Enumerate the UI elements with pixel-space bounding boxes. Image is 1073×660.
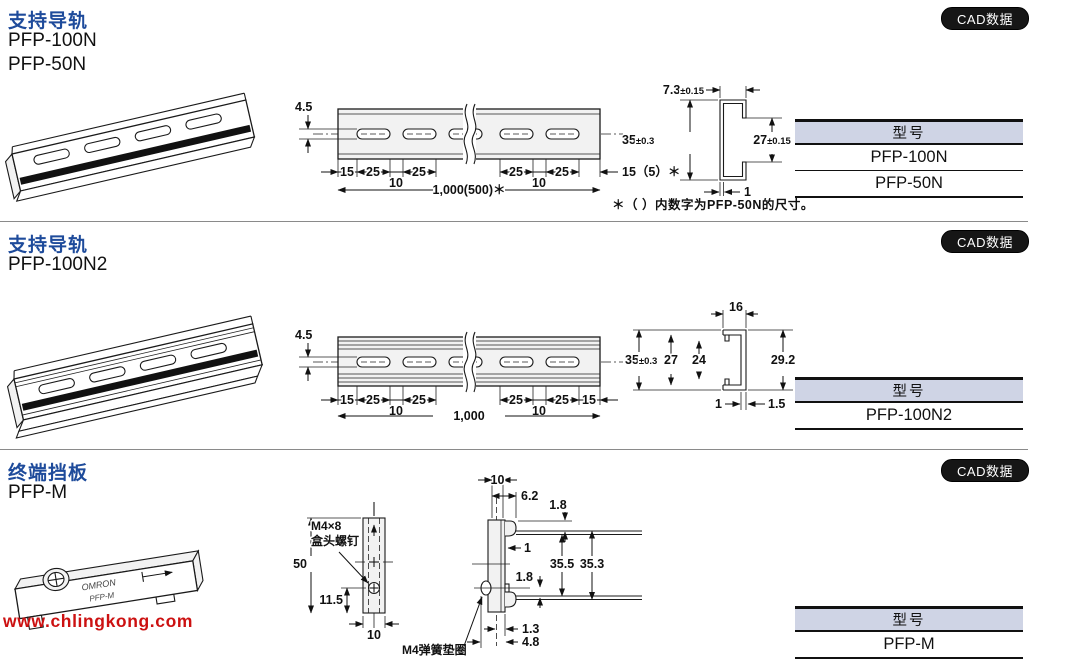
dim-label: 25 xyxy=(509,165,523,179)
section2-title: 支持导轨 xyxy=(8,230,88,257)
dim-label: 29.2 xyxy=(771,353,795,367)
dim-label: 25 xyxy=(366,393,380,407)
dim-label: 4.8 xyxy=(522,635,539,649)
dim-label: 1,000(500)＊ xyxy=(433,183,506,197)
dim-label: 11.5 xyxy=(319,593,343,607)
dim-label: 15 xyxy=(582,393,596,407)
rail-top-view-2: 4.5 15 25 10 25 25 10 25 15 1,000 xyxy=(283,318,683,428)
dim-label: 7.3±0.15 xyxy=(663,83,705,97)
section-divider xyxy=(0,449,1028,450)
model-table-2: 型号 PFP-100N2 xyxy=(795,377,1023,430)
model-table-3: 型号 PFP-M xyxy=(795,606,1023,659)
section3-title: 终端挡板 xyxy=(8,458,88,485)
dim-label: 25 xyxy=(412,165,426,179)
dim-label: 15 xyxy=(340,165,354,179)
dim-label: 1.8 xyxy=(549,498,566,512)
dim-label: 10 xyxy=(389,176,403,190)
dim-label: 25 xyxy=(555,393,569,407)
section2-model-1: PFP-100N2 xyxy=(8,254,107,276)
cad-data-button-3[interactable]: CAD数据 xyxy=(941,459,1029,482)
table-row: PFP-100N2 xyxy=(795,403,1023,428)
cad-data-button-2[interactable]: CAD数据 xyxy=(941,230,1029,253)
section1-title: 支持导轨 xyxy=(8,6,88,33)
dim-label: 1.3 xyxy=(522,622,539,636)
model-table-1: 型号 PFP-100N PFP-50N xyxy=(795,119,1023,198)
table-row: PFP-50N xyxy=(795,171,1023,196)
dim-label: 35±0.3 xyxy=(622,133,654,147)
section3-model-1: PFP-M xyxy=(8,482,67,504)
section1-note: ＊（ ）内数字为PFP-50N的尺寸。 xyxy=(612,194,814,213)
watermark: www.chlingkong.com xyxy=(3,611,193,632)
screw-label: M4×8 xyxy=(311,519,342,533)
table-row: PFP-M xyxy=(795,632,1023,657)
endplate-3d-drawing: OMRON PFP-M xyxy=(5,545,220,655)
dim-label: 50 xyxy=(293,557,307,571)
dim-label: 25 xyxy=(509,393,523,407)
dim-label: 25 xyxy=(555,165,569,179)
dim-label: 27±0.15 xyxy=(753,133,791,147)
dim-label: 24 xyxy=(692,353,706,367)
dim-label: 35.3 xyxy=(580,557,604,571)
dim-label: 4.5 xyxy=(295,100,312,114)
dim-label: 10 xyxy=(532,176,546,190)
dim-label: 25 xyxy=(412,393,426,407)
rail-3d-drawing-1 xyxy=(6,66,276,206)
dim-label: 1.8 xyxy=(516,570,533,584)
dim-label: 6.2 xyxy=(521,489,538,503)
dim-label: 1.5 xyxy=(768,397,785,411)
section1-model-1: PFP-100N xyxy=(8,30,97,52)
cad-data-button-1[interactable]: CAD数据 xyxy=(941,7,1029,30)
model-table-header: 型号 xyxy=(795,609,1023,632)
table-row: PFP-100N xyxy=(795,145,1023,171)
dim-label: 35±0.3 xyxy=(625,353,657,367)
dim-label: 16 xyxy=(729,300,743,314)
model-table-header: 型号 xyxy=(795,380,1023,403)
dim-label: 1 xyxy=(524,541,531,555)
model-table-header: 型号 xyxy=(795,122,1023,145)
washer-label: M4弹簧垫圈 xyxy=(402,642,467,657)
dim-label: 15 xyxy=(340,393,354,407)
dim-label: 4.5 xyxy=(295,328,312,342)
endplate-side-view: 10 6.2 1 1.8 35.5 35.3 1.8 1.3 4.8 M4弹簧垫… xyxy=(390,468,655,660)
dim-label: 10 xyxy=(491,473,505,487)
dim-label: 1 xyxy=(715,397,722,411)
rail-profile-2: 16 35±0.3 27 24 29.2 1 1.5 xyxy=(625,300,815,435)
dim-label: 35.5 xyxy=(550,557,574,571)
section-divider xyxy=(0,221,1028,222)
dim-label: 1,000 xyxy=(453,409,484,423)
dim-label: 27 xyxy=(664,353,678,367)
dim-label: 25 xyxy=(366,165,380,179)
screw-label: 盒头螺钉 xyxy=(310,533,359,548)
dim-label: 10 xyxy=(367,628,381,642)
rail-3d-drawing-2 xyxy=(6,285,291,440)
